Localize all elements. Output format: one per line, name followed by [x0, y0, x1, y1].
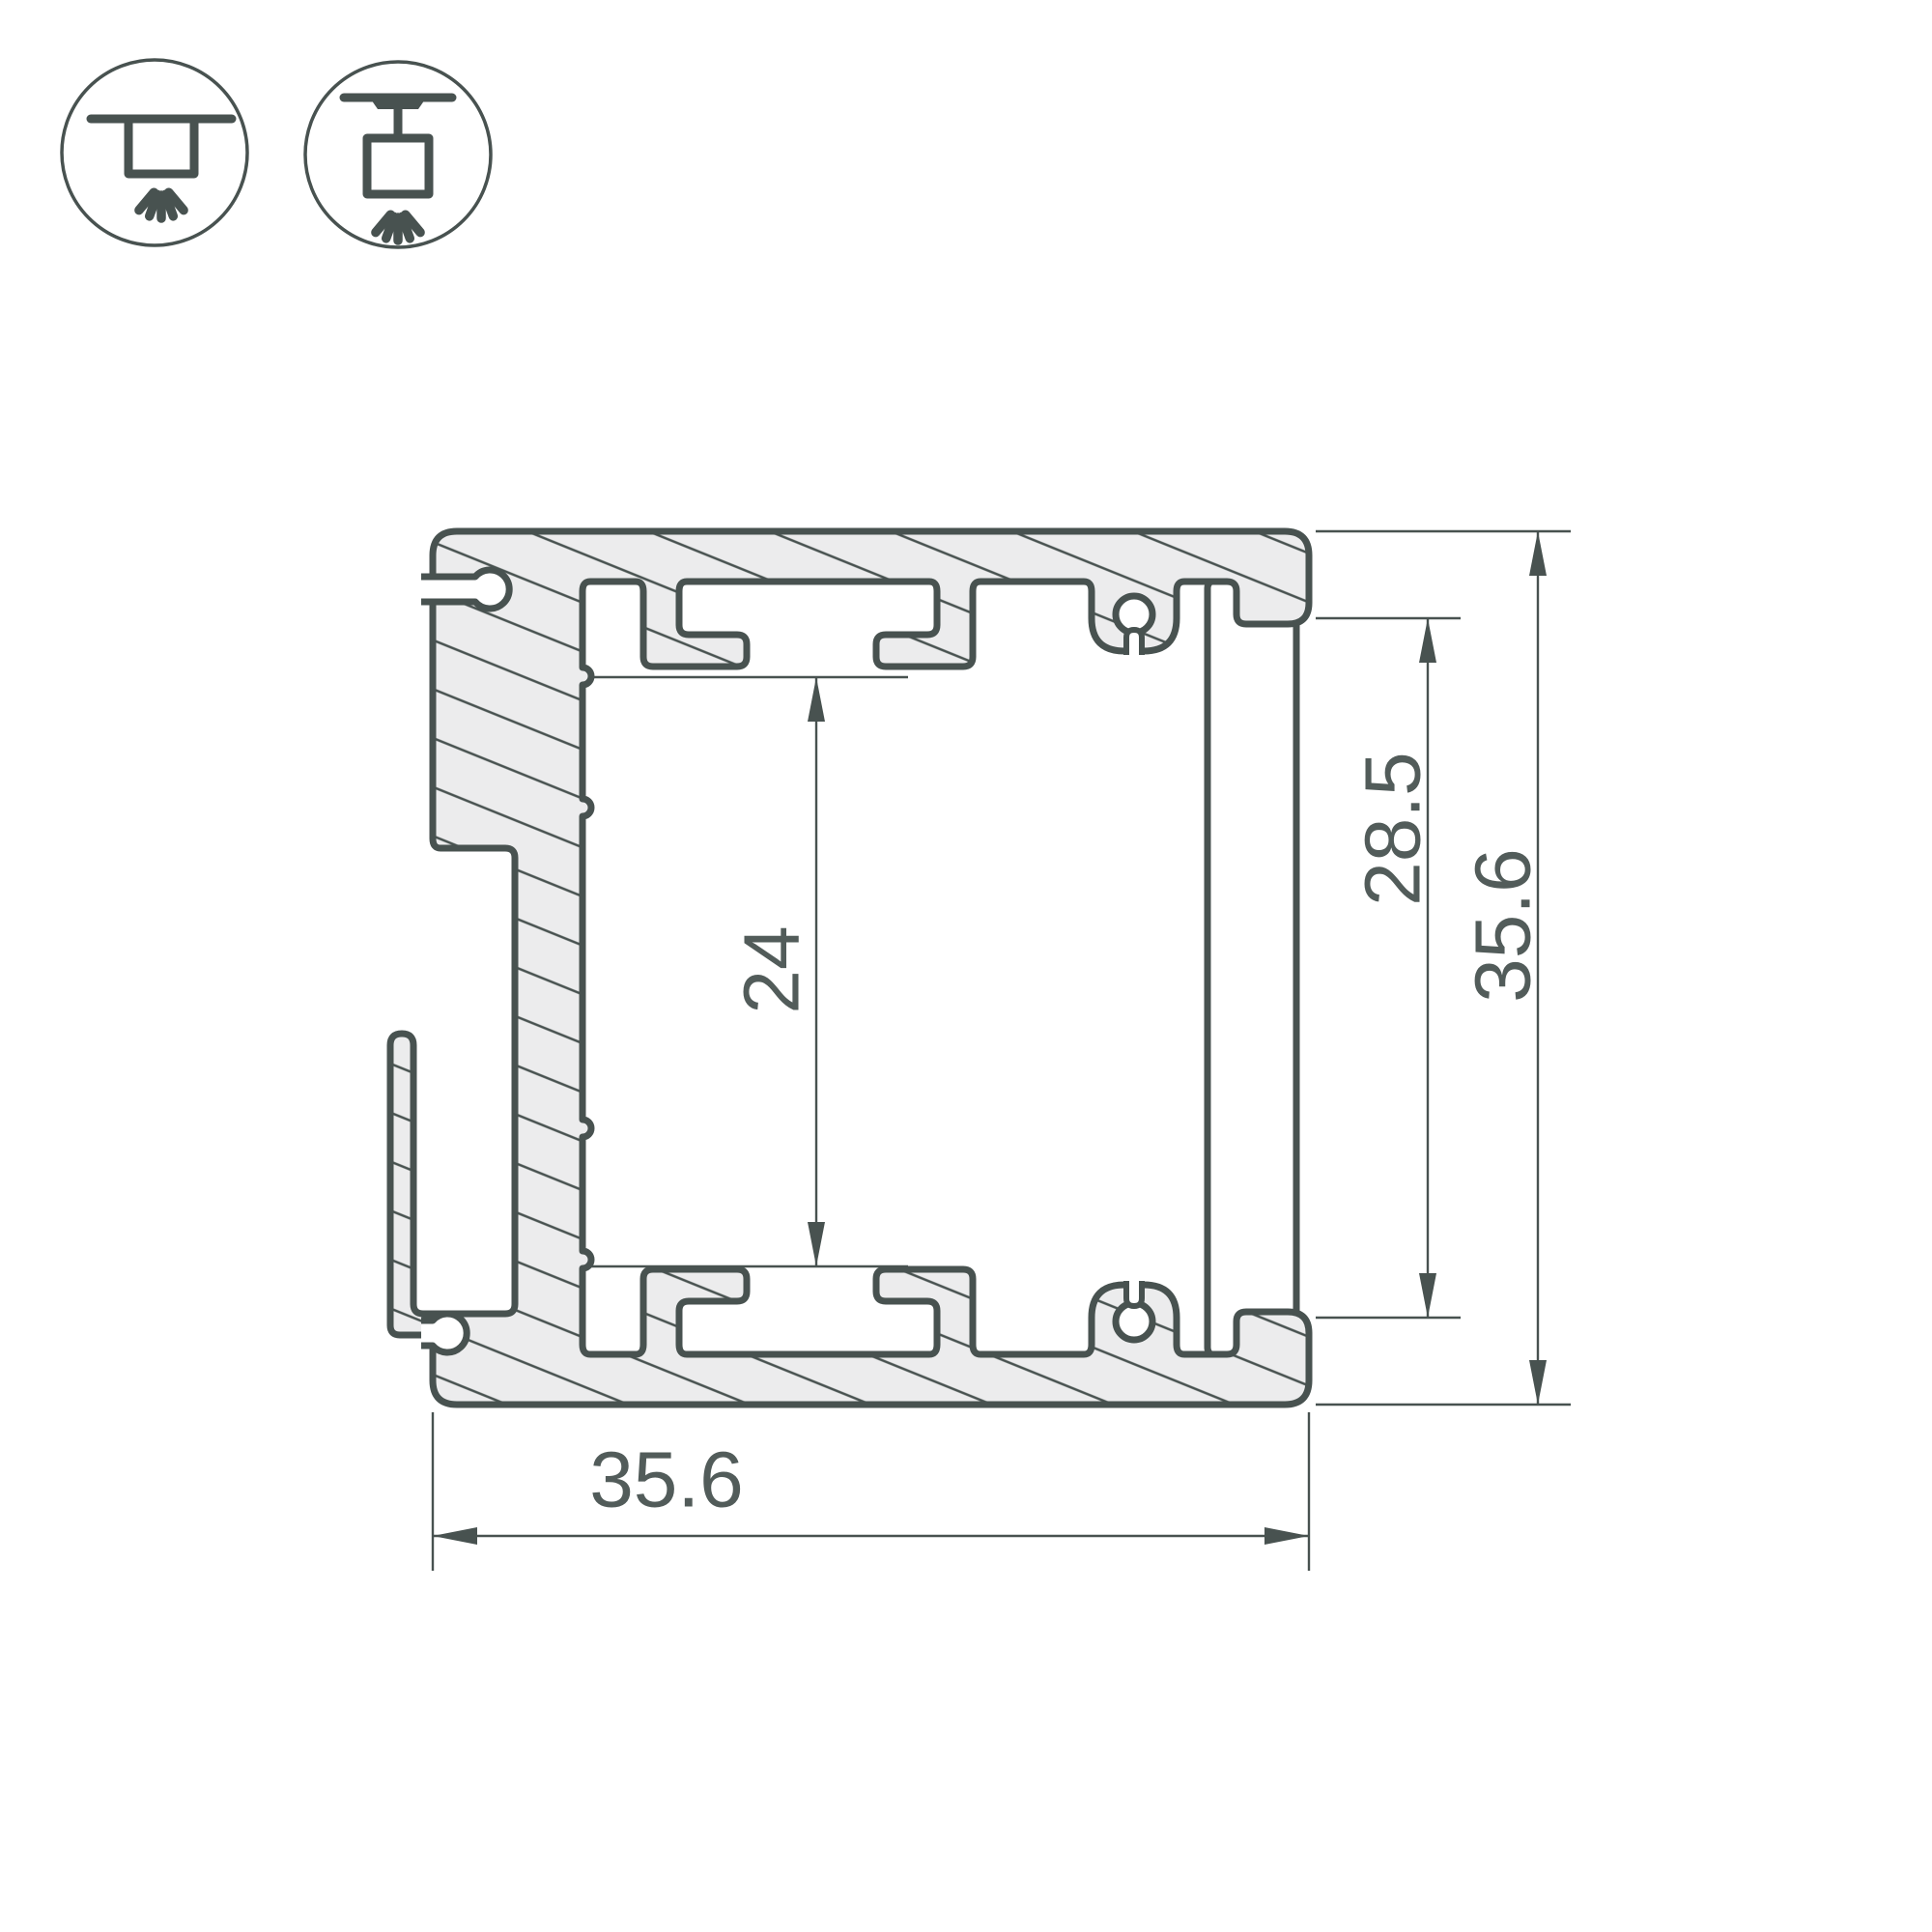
surface-mount-icon: [62, 60, 247, 245]
keyhole-screw-port-left-bottom: [421, 1314, 467, 1352]
page: 24 28.5 35.6 35.6: [0, 0, 1932, 1932]
light-rays-icon: [376, 214, 420, 241]
dimension-label-cover-height: 28.5: [1350, 752, 1437, 906]
dimension-label-overall-width: 35.6: [589, 1436, 744, 1524]
dimension-label-overall-height: 35.6: [1460, 848, 1548, 1003]
light-rays-icon: [139, 192, 184, 218]
dimension-label-inner-height: 24: [728, 925, 816, 1013]
dimension-overall-width: [433, 1412, 1309, 1571]
cover-plate: [1207, 580, 1296, 1356]
pendant-mount-icon: [305, 62, 491, 247]
dimension-cover-height: [1316, 618, 1461, 1318]
keyhole-screw-port-left-top: [421, 570, 509, 609]
profile-section: [390, 531, 1309, 1405]
profile-drawing: 24 28.5 35.6 35.6: [0, 0, 1932, 1932]
icon-circle: [62, 60, 247, 245]
